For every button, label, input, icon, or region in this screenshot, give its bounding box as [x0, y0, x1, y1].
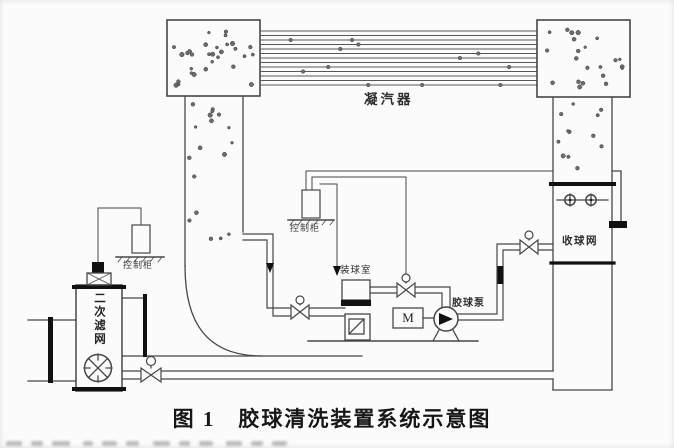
- control-cabinet-middle: [288, 171, 553, 276]
- secondary-filter-label: 二次滤网: [91, 292, 107, 346]
- handle-lever-icon: [609, 221, 627, 228]
- wire-to-collector: [306, 171, 553, 190]
- wire-to-chamber: [320, 184, 337, 266]
- ball-chamber: [341, 280, 371, 340]
- control-cabinet-left-label: 控制柜: [123, 258, 153, 271]
- wire-to-valve: [312, 177, 406, 274]
- flow-indicator-icon: [498, 266, 504, 284]
- ball-pump-icon: [433, 307, 459, 341]
- screen-drive-icon: [557, 194, 608, 206]
- figure-caption: 图 1 胶球清洗装置系统示意图: [142, 403, 522, 433]
- left-duct: [122, 96, 362, 356]
- left-waterbox: [167, 20, 260, 96]
- condenser-tubes: [260, 31, 537, 85]
- elbow-curve: [185, 266, 262, 356]
- strainer-icon: [84, 354, 112, 382]
- condenser-label: 凝汽器: [364, 88, 414, 108]
- ball-cleaning-system-diagram: [0, 0, 674, 448]
- control-wire: [98, 208, 141, 262]
- motor-label: M: [393, 310, 423, 326]
- ball-feed-pipe: [243, 234, 345, 316]
- bottom-pipe: [122, 371, 553, 379]
- control-cabinet-middle-label: 控制柜: [290, 221, 320, 234]
- ball-pump-label: 胶球泵: [452, 294, 485, 309]
- rubber-ball-dots: [172, 28, 624, 241]
- control-cabinet-left: [98, 208, 164, 262]
- scanned-figure-page: 凝汽器 控制柜 控制柜 二次滤网 装球室 胶球泵 收球网 M 图 1 胶球清洗装…: [0, 0, 674, 448]
- cropped-text-strip: [6, 441, 426, 448]
- secondary-filter-box: [28, 262, 145, 391]
- inlet-flange: [28, 317, 76, 383]
- filter-actuator-icon: [87, 262, 111, 285]
- ball-chamber-label: 装球室: [340, 262, 372, 276]
- ball-collector-label: 收球网: [562, 233, 598, 248]
